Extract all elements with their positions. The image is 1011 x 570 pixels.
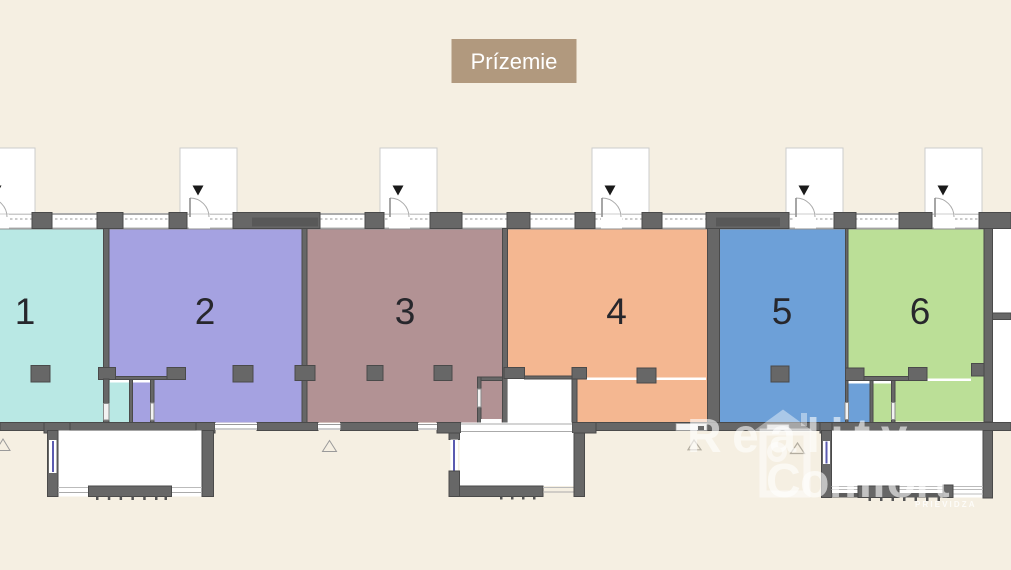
svg-text:5: 5: [772, 291, 793, 332]
svg-text:3: 3: [395, 291, 416, 332]
svg-text:1: 1: [15, 291, 36, 332]
svg-text:4: 4: [606, 291, 627, 332]
svg-text:PRIEVIDZA: PRIEVIDZA: [915, 500, 977, 509]
svg-text:2: 2: [195, 291, 216, 332]
svg-text:Prízemie: Prízemie: [471, 49, 558, 74]
svg-text:6: 6: [910, 291, 931, 332]
